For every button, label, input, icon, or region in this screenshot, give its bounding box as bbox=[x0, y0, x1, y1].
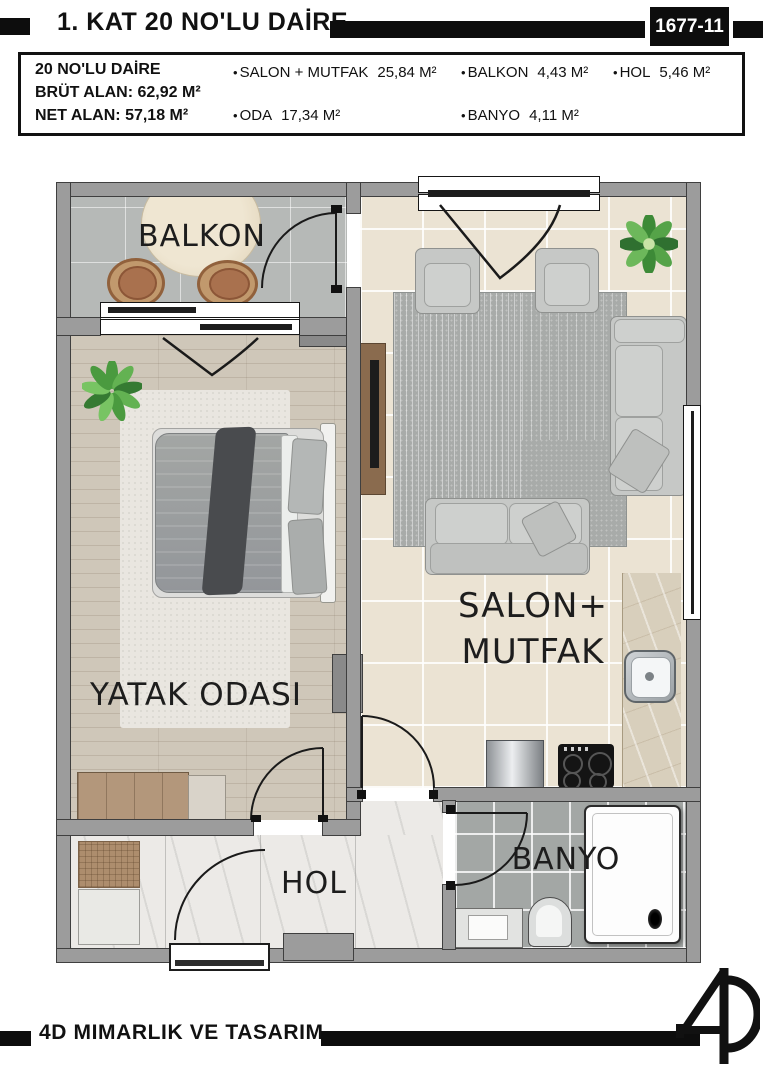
living-door-arc bbox=[362, 716, 434, 788]
bedroom-door-arc bbox=[251, 748, 323, 820]
bedroom-window-tilt-icon bbox=[163, 338, 258, 375]
company-logo-4d bbox=[676, 966, 760, 1066]
plan-sheet: 1. KAT 20 NO'LU DAİRE 1677-11 20 NO'LU D… bbox=[0, 0, 763, 1080]
room-area-oda: •ODA17,34 M² bbox=[233, 107, 340, 124]
gross-area: BRÜT ALAN: 62,92 M² bbox=[35, 84, 201, 102]
entrance-door-arc bbox=[175, 850, 265, 940]
living-window-tilt-icon bbox=[440, 205, 560, 278]
floor-plan: BALKON YATAK ODASI bbox=[57, 183, 700, 962]
door-hinge-marks bbox=[251, 205, 455, 890]
company-name: 4D MIMARLIK VE TASARIM bbox=[39, 1021, 324, 1045]
net-area: NET ALAN: 57,18 M² bbox=[35, 107, 188, 125]
footer-long-bar bbox=[321, 1031, 700, 1046]
room-area-salon-mutfak: •SALON + MUTFAK25,84 M² bbox=[233, 64, 437, 81]
header-left-bar bbox=[0, 18, 30, 35]
header-mid-bar bbox=[330, 21, 645, 38]
bathroom-door-arc bbox=[455, 813, 527, 885]
sheet-number: 1677-11 bbox=[655, 16, 724, 38]
balcony-door-arc bbox=[262, 213, 336, 288]
sheet-number-badge: 1677-11 bbox=[650, 7, 729, 46]
header-right-bar bbox=[733, 21, 763, 38]
page-title: 1. KAT 20 NO'LU DAİRE bbox=[57, 8, 348, 37]
apartment-name: 20 NO'LU DAİRE bbox=[35, 61, 161, 79]
room-area-hol: •HOL5,46 M² bbox=[613, 64, 710, 81]
area-info-box: 20 NO'LU DAİRE BRÜT ALAN: 62,92 M² NET A… bbox=[18, 52, 745, 136]
room-area-banyo: •BANYO4,11 M² bbox=[461, 107, 579, 124]
footer-left-bar bbox=[0, 1031, 31, 1046]
door-swing-symbols bbox=[57, 173, 700, 973]
room-area-balkon: •BALKON4,43 M² bbox=[461, 64, 588, 81]
